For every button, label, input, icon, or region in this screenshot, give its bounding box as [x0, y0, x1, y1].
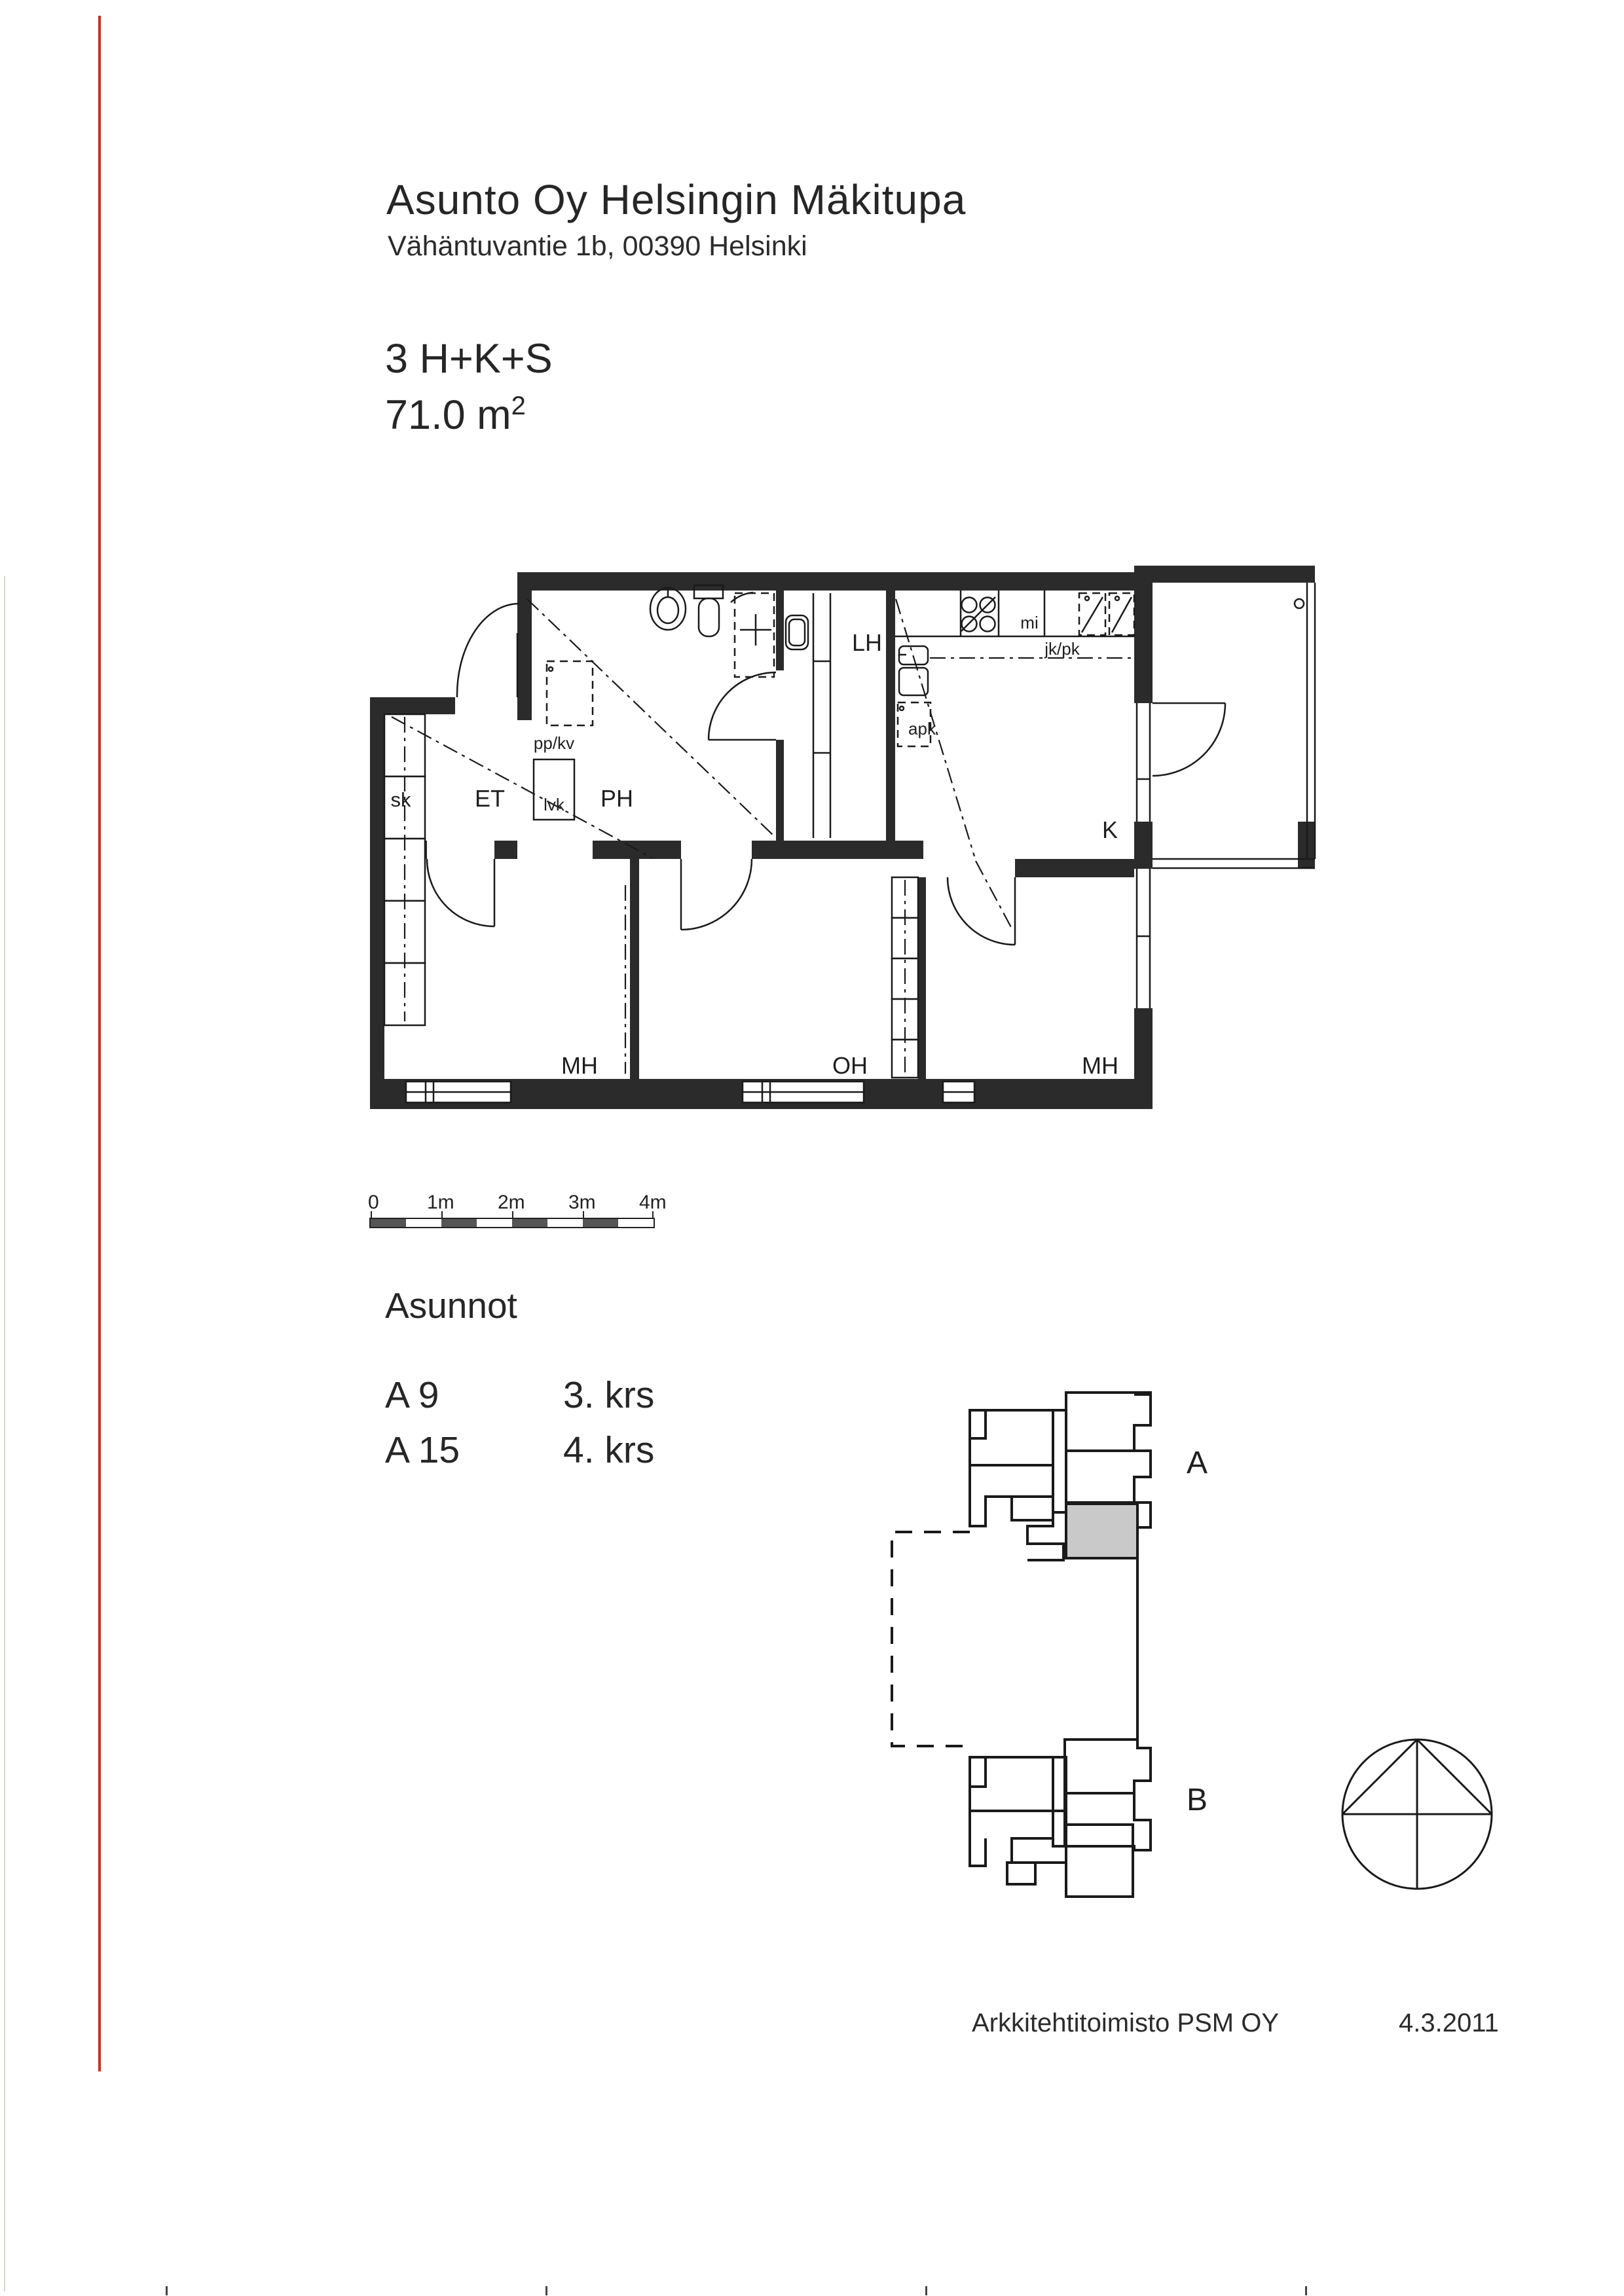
scale-tick-label: 3m: [568, 1192, 596, 1214]
dash-dot-lines: [392, 599, 1133, 1076]
label-apk: apk: [908, 719, 936, 738]
architect-credit: Arkkitehtitoimisto PSM OY: [972, 2009, 1279, 2038]
walls: [370, 566, 1315, 1109]
dashed-fixtures: [547, 593, 1134, 746]
label-jkpk: jk/pk: [1044, 639, 1080, 659]
scale-tick-label: 1m: [427, 1192, 454, 1214]
label-sk: sk: [391, 788, 412, 811]
label-mi: mi: [1020, 613, 1038, 632]
scale-bar-segments: [369, 1218, 655, 1228]
building-a-label: A: [1187, 1446, 1208, 1480]
label-ppkv: pp/kv: [534, 733, 574, 753]
document-date: 4.3.2011: [1399, 2009, 1499, 2038]
scale-tick-label: 0: [368, 1192, 379, 1214]
apartment-floor: 3. krs: [563, 1374, 654, 1417]
label-et: ET: [475, 785, 505, 812]
area-value: 71.0 m: [385, 392, 511, 438]
document-address: Vähäntuvantie 1b, 00390 Helsinki: [388, 230, 807, 263]
building-a-outline: [970, 1393, 1151, 1740]
label-k: K: [1102, 816, 1118, 843]
scale-tick-label: 2m: [498, 1192, 525, 1214]
registration-tick: [545, 2286, 547, 2295]
scale-bar-labels: 0 1m 2m 3m 4m: [368, 1192, 663, 1211]
document-title: Asunto Oy Helsingin Mäkitupa: [386, 175, 966, 224]
highlighted-unit: [1066, 1504, 1137, 1558]
site-dashed-line: [892, 1532, 970, 1746]
area-exponent: 2: [511, 392, 526, 420]
registration-tick: [925, 2286, 927, 2295]
registration-tick: [166, 2286, 168, 2295]
apartment-id: A 9: [385, 1374, 439, 1417]
label-mh-right: MH: [1082, 1052, 1118, 1079]
section-heading-asunnot: Asunnot: [385, 1285, 517, 1326]
apartment-type: 3 H+K+S: [385, 335, 553, 382]
north-compass-icon: [1340, 1736, 1497, 1893]
scale-tick-label: 4m: [639, 1192, 667, 1214]
label-ph: PH: [600, 785, 633, 812]
floor-plan: sk ET PH LH K MH OH MH pp/kv lvk apk mi …: [360, 563, 1323, 1126]
label-lvk: lvk: [544, 795, 565, 814]
building-b-outline: [970, 1740, 1151, 1897]
apartment-id: A 15: [385, 1429, 460, 1472]
label-mh-left: MH: [561, 1052, 598, 1079]
label-oh: OH: [832, 1052, 868, 1079]
apartment-area: 71.0 m2: [385, 392, 526, 439]
registration-tick: [1305, 2286, 1307, 2295]
apartment-floor: 4. krs: [563, 1429, 654, 1472]
scale-bar: 0 1m 2m 3m 4m: [368, 1192, 663, 1231]
scan-red-line: [98, 16, 101, 2071]
building-b-label: B: [1187, 1783, 1208, 1817]
scan-grey-line: [4, 576, 5, 2291]
label-lh: LH: [852, 629, 882, 656]
building-key-plan: A B: [877, 1368, 1244, 1912]
